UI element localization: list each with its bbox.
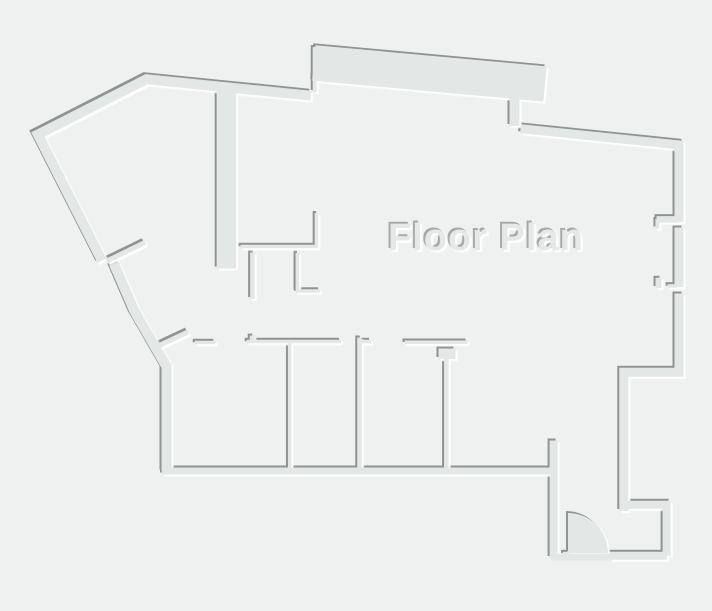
svg-text:Floor Plan: Floor Plan	[388, 217, 584, 259]
